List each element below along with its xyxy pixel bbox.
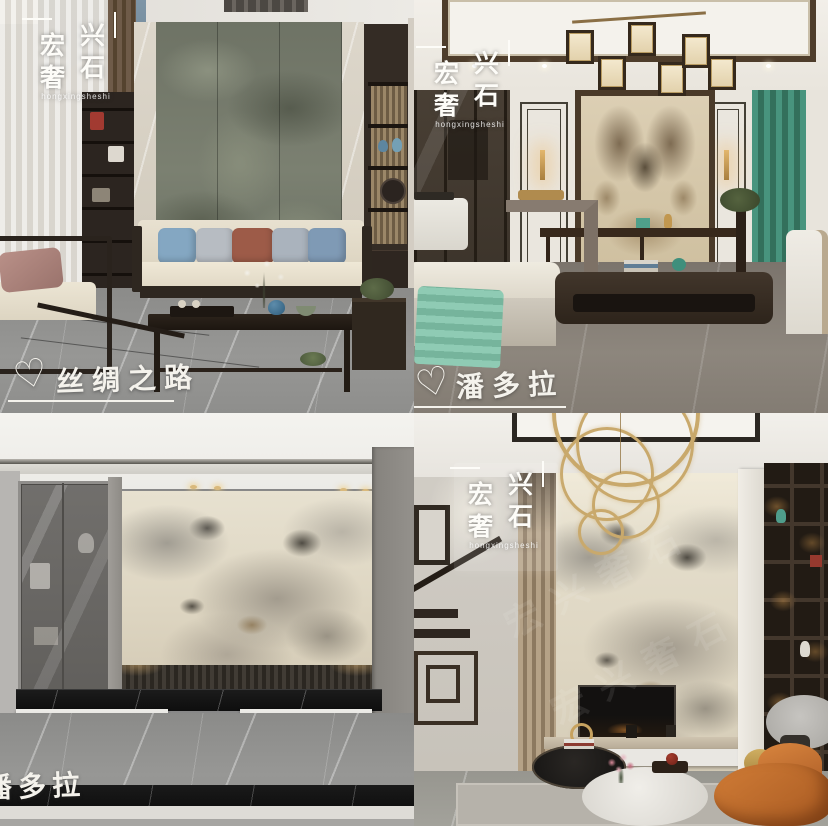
cabinet-side-panel	[0, 471, 20, 725]
teal-pot	[672, 258, 686, 271]
white-flower-arrangement	[236, 258, 292, 308]
coffee-table	[555, 272, 773, 324]
logo-line	[508, 40, 510, 66]
logo-char: 奢	[468, 507, 493, 543]
blue-vase	[378, 140, 388, 152]
photo-bottom-left-pandora-tv-wall: 潘多拉	[0, 413, 414, 826]
black-marble-bench	[16, 689, 382, 711]
logo-line	[542, 461, 544, 487]
pink-flower-bouquet	[598, 749, 644, 783]
photo-bottom-right-tall-pandora-room: 宏兴奢石 宏兴奢石 宏 兴 奢 石 hongxingsheshi	[414, 413, 828, 826]
plant-stand	[736, 206, 746, 278]
heart-icon: ♡	[10, 352, 52, 397]
red-books	[810, 555, 822, 567]
logo-char: 宏	[40, 26, 65, 62]
recessed-light	[214, 486, 221, 490]
logo-char: 宏	[434, 54, 459, 90]
book-stack	[564, 739, 594, 749]
stool-tray	[414, 192, 454, 200]
geometric-wood-art	[414, 651, 478, 725]
chandelier-cable	[620, 413, 621, 473]
white-stool	[414, 198, 468, 250]
caption-underline	[414, 406, 566, 408]
table-leg	[344, 330, 350, 392]
chandelier-lantern	[628, 22, 656, 56]
wall-sconce	[724, 150, 729, 180]
logo-pinyin: hongxingsheshi	[414, 120, 526, 129]
cabinet-decor	[78, 533, 94, 553]
logo-pinyin: hongxingsheshi	[448, 541, 560, 550]
logo-char: 石	[508, 497, 533, 533]
photo-top-right-pandora-room: 宏 兴 奢 石 hongxingsheshi ♡ 潘多拉	[414, 0, 828, 413]
floor-edge	[0, 819, 414, 826]
logo-pinyin: hongxingsheshi	[20, 92, 132, 101]
caption-text: 丝绸之路	[55, 355, 200, 400]
teal-decor-box	[636, 218, 650, 228]
logo-char: 兴	[474, 44, 499, 80]
caption-text: 潘多拉	[0, 763, 87, 807]
ac-vent	[224, 0, 308, 12]
armchair	[786, 230, 828, 334]
gold-tray	[518, 190, 564, 200]
cabinet-mullion	[62, 483, 64, 703]
ring-chandelier	[578, 509, 624, 555]
logo-char: 奢	[40, 58, 65, 94]
ceiling-cove-step	[0, 464, 384, 474]
smoked-glass-cabinet	[18, 481, 116, 711]
logo-char: 奢	[434, 86, 459, 122]
shelf-decor	[108, 146, 124, 162]
bonsai-plant	[720, 188, 760, 212]
caption-underline	[8, 400, 174, 402]
recessed-light	[766, 64, 771, 68]
stair-step	[414, 629, 470, 638]
logo-char: 石	[474, 76, 499, 112]
cabinet-books	[30, 563, 50, 589]
heart-icon: ♡	[414, 360, 454, 405]
teal-vase	[776, 509, 786, 523]
succulent-plant	[300, 352, 326, 366]
wall-sconce	[540, 150, 545, 180]
orange-leather-chair	[714, 763, 828, 826]
white-marble-strip	[0, 806, 414, 819]
logo-char: 兴	[508, 465, 533, 501]
chandelier-lantern	[566, 30, 594, 64]
brand-logo: 宏 兴 奢 石 hongxingsheshi	[420, 42, 520, 146]
blue-ceramic-pot	[268, 300, 285, 315]
tea-cup	[192, 300, 200, 308]
decor-plate	[380, 178, 406, 204]
logo-char: 石	[80, 48, 105, 84]
fire-glow	[600, 719, 650, 733]
cabinet-shelves	[368, 80, 410, 250]
stair-step	[414, 609, 458, 618]
white-pilaster	[738, 469, 764, 775]
chandelier-lantern	[682, 34, 710, 68]
chandelier-lantern	[598, 56, 626, 90]
book-stack	[624, 260, 658, 272]
sofa-pillow	[196, 228, 234, 264]
logo-char: 宏	[468, 475, 493, 511]
ceiling	[0, 413, 414, 489]
white-vase	[800, 641, 810, 657]
side-table	[352, 298, 406, 370]
shelf-decor	[92, 188, 110, 202]
chandelier-lantern	[708, 56, 736, 90]
logo-line	[416, 46, 446, 48]
recessed-light	[190, 485, 197, 489]
red-decor	[666, 753, 678, 765]
bonsai-plant	[360, 278, 394, 300]
wall-panel	[108, 477, 122, 709]
sofa-arm	[132, 226, 142, 292]
gold-vase	[664, 214, 672, 228]
caption-text: 潘多拉	[455, 362, 564, 406]
cabinet-decor	[34, 627, 58, 645]
stone-interior-collage: 宏 兴 奢 石 hongxingsheshi ♡ 丝绸之路	[0, 0, 828, 826]
brand-logo: 宏 兴 奢 石 hongxingsheshi	[454, 463, 558, 571]
logo-line	[22, 18, 52, 20]
caption-silk-road: ♡ 丝绸之路	[8, 350, 218, 408]
caption-pandora: ♡ 潘多拉	[414, 356, 614, 412]
logo-line	[450, 467, 480, 469]
brand-logo: 宏 兴 奢 石 hongxingsheshi	[26, 14, 126, 118]
recessed-light	[542, 64, 547, 68]
caption-pandora-partial: 潘多拉	[0, 765, 124, 805]
photo-frame-decor	[666, 725, 676, 737]
framed-art	[414, 505, 450, 565]
logo-line	[114, 12, 116, 38]
blue-vase	[392, 138, 402, 152]
tea-cup	[178, 300, 186, 308]
pandora-marble-feature-wall	[122, 491, 372, 677]
logo-char: 兴	[80, 16, 105, 52]
sofa-pillow	[308, 228, 346, 264]
photo-top-left-silk-road-room: 宏 兴 奢 石 hongxingsheshi ♡ 丝绸之路	[0, 0, 414, 413]
photo-frame-decor	[626, 725, 637, 738]
sofa-pillow	[158, 228, 196, 264]
